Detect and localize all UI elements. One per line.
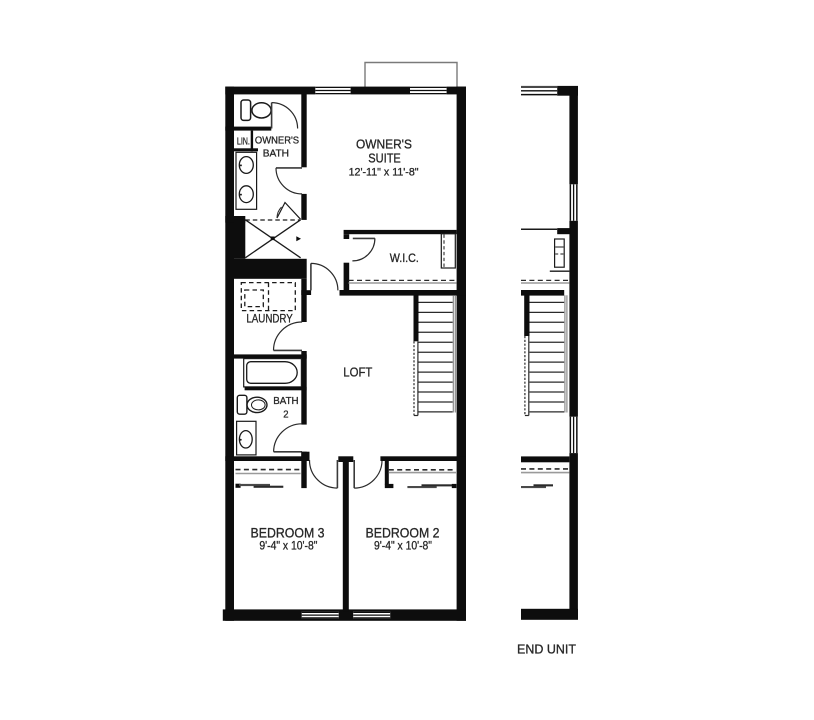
svg-text:BATH: BATH — [273, 395, 298, 407]
svg-text:W.I.C.: W.I.C. — [390, 253, 419, 265]
svg-text:2: 2 — [283, 408, 288, 420]
svg-text:END UNIT: END UNIT — [517, 641, 576, 656]
svg-text:LAUNDRY: LAUNDRY — [246, 312, 292, 326]
svg-text:9'-4" x 10'-8": 9'-4" x 10'-8" — [374, 539, 432, 553]
svg-text:LOFT: LOFT — [343, 365, 372, 380]
svg-text:BATH: BATH — [263, 148, 289, 160]
svg-text:SUITE: SUITE — [368, 151, 401, 166]
svg-text:OWNER'S: OWNER'S — [356, 136, 412, 151]
svg-text:LIN.: LIN. — [237, 135, 250, 147]
svg-text:9'-4" x 10'-8": 9'-4" x 10'-8" — [259, 539, 317, 553]
svg-text:OWNER'S: OWNER'S — [255, 134, 299, 146]
svg-text:12'-11" x 11'-8": 12'-11" x 11'-8" — [349, 167, 419, 179]
